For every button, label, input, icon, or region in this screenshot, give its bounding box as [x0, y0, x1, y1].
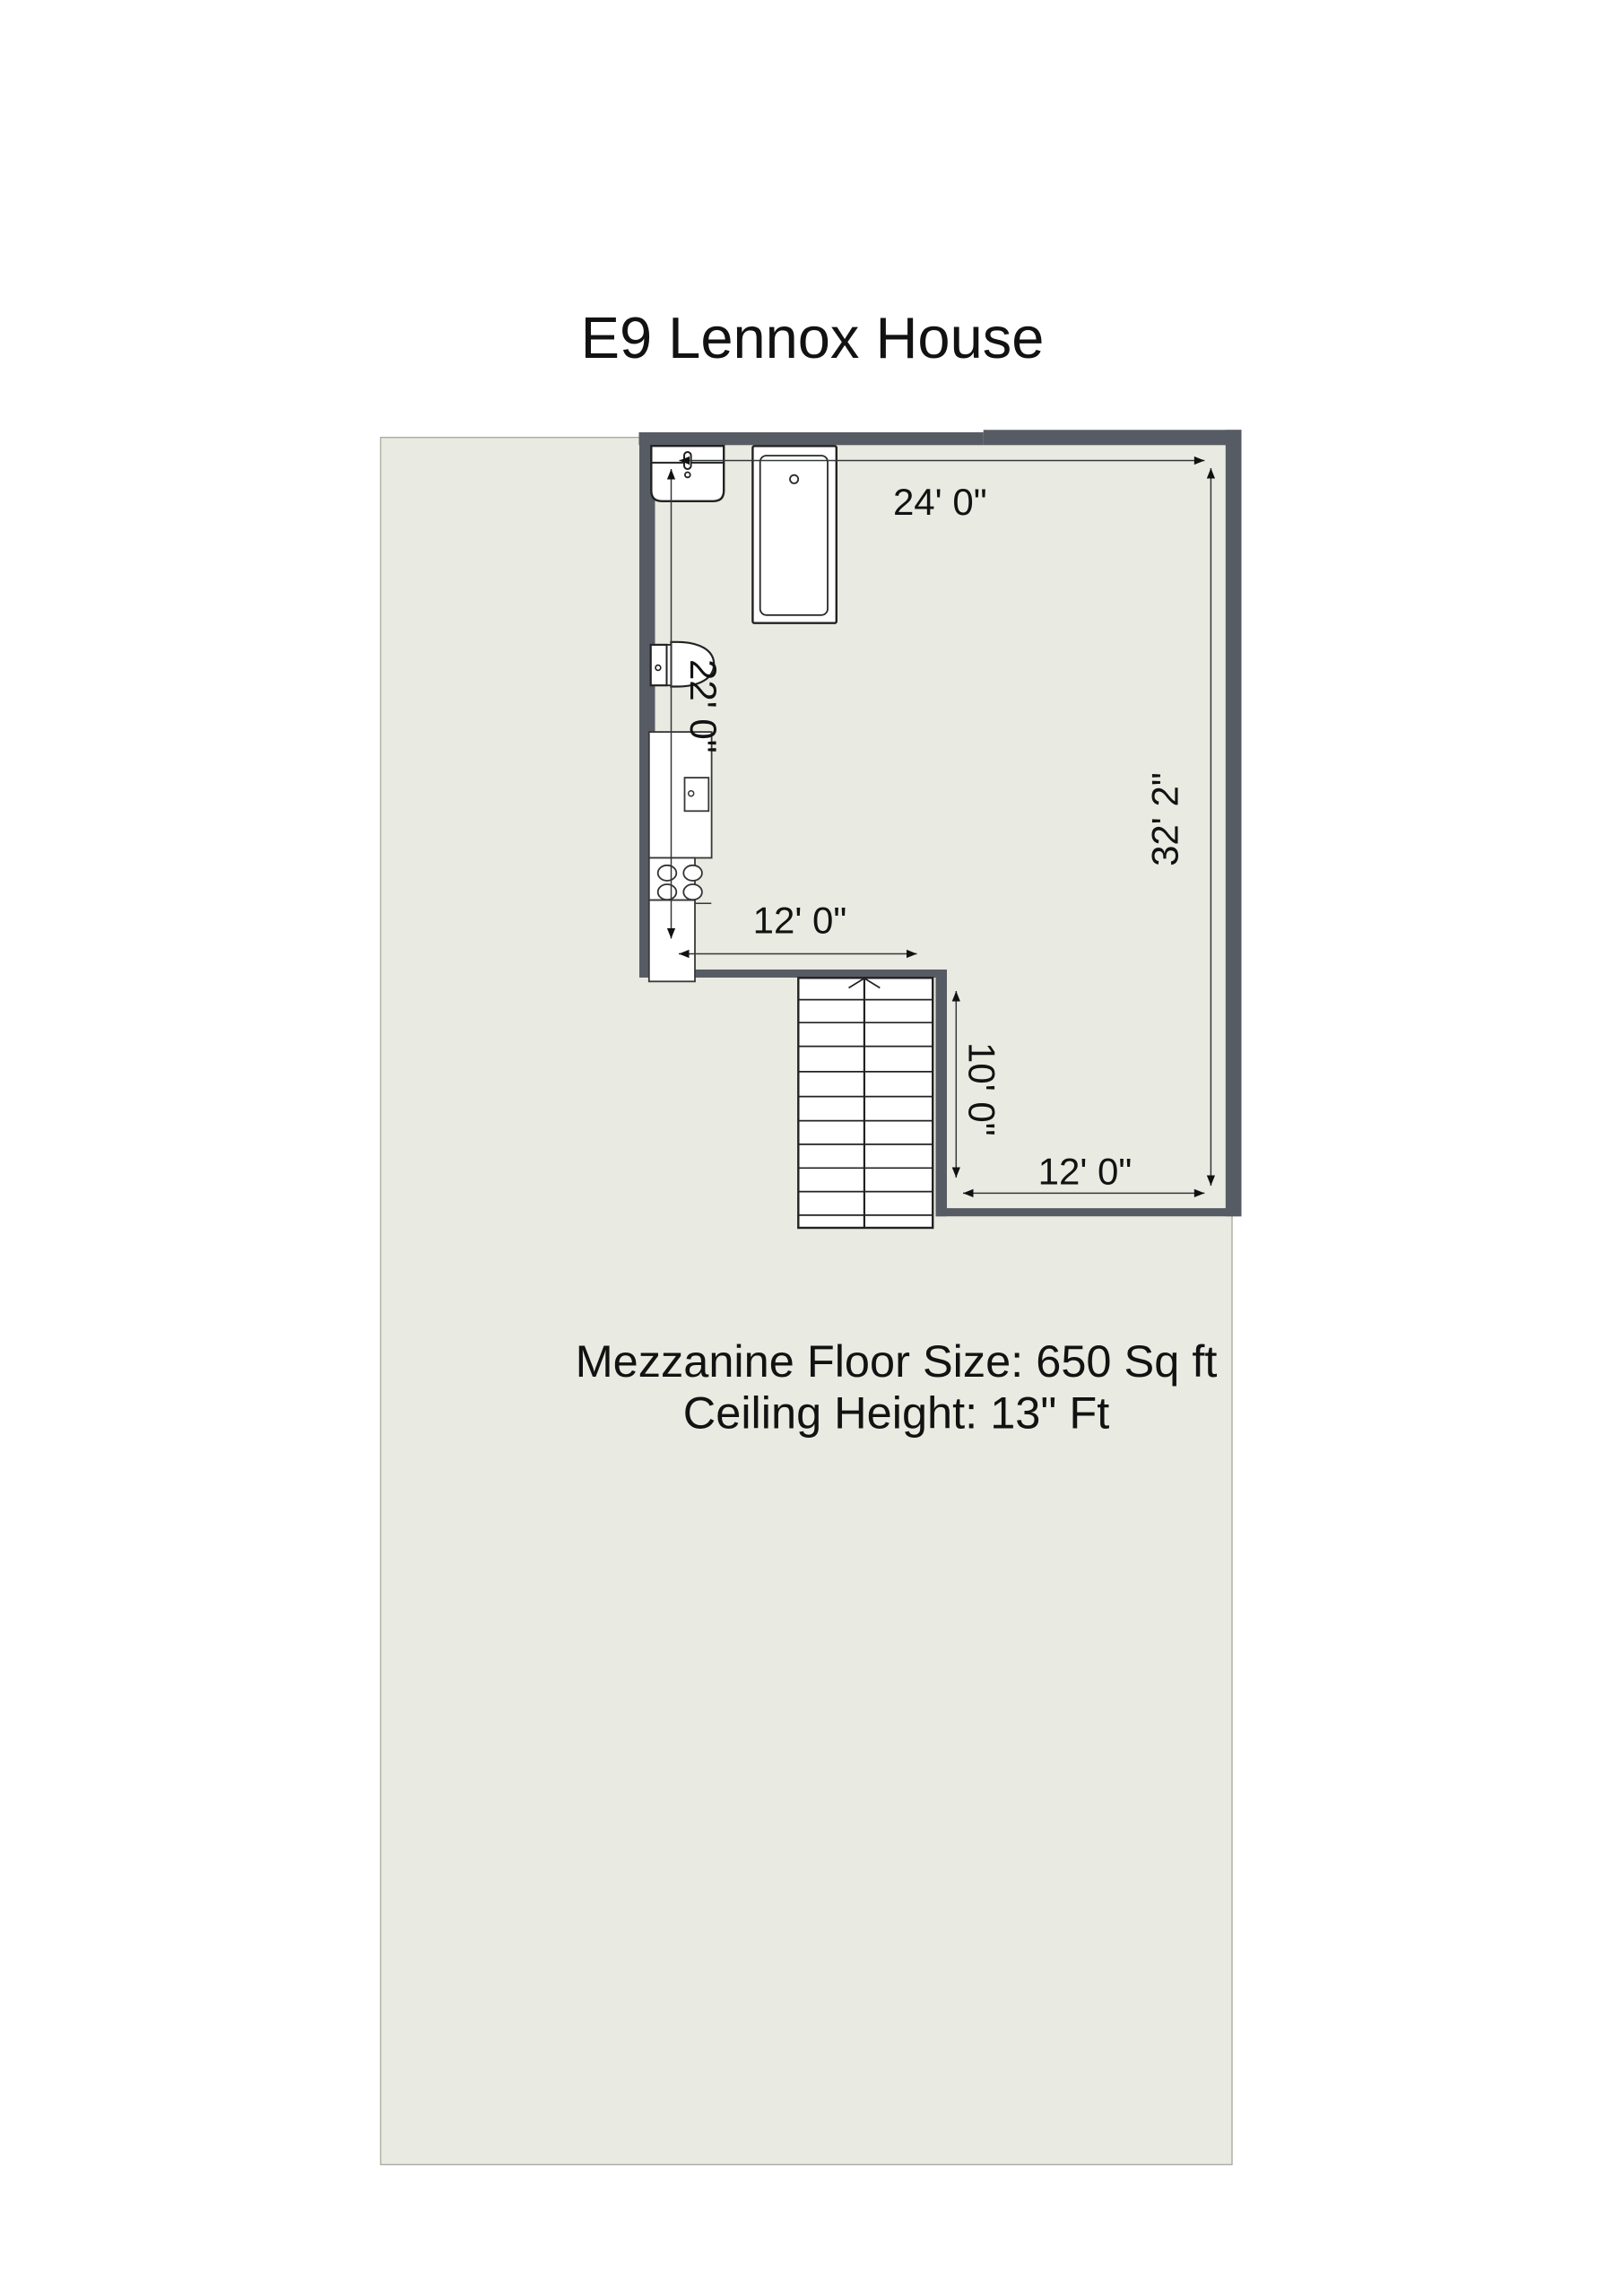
svg-text:22' 0": 22' 0" — [682, 659, 725, 753]
svg-text:10' 0": 10' 0" — [961, 1042, 1003, 1136]
svg-text:12' 0": 12' 0" — [1038, 1151, 1133, 1193]
svg-text:E9 Lennox House: E9 Lennox House — [581, 305, 1045, 370]
svg-text:24' 0": 24' 0" — [893, 481, 987, 523]
svg-text:12' 0": 12' 0" — [753, 900, 847, 942]
svg-text:Mezzanine Floor Size: 650 Sq f: Mezzanine Floor Size: 650 Sq ft — [576, 1335, 1218, 1387]
svg-text:Ceiling Height: 13" Ft: Ceiling Height: 13" Ft — [683, 1387, 1109, 1439]
svg-text:32' 2": 32' 2" — [1143, 772, 1185, 866]
